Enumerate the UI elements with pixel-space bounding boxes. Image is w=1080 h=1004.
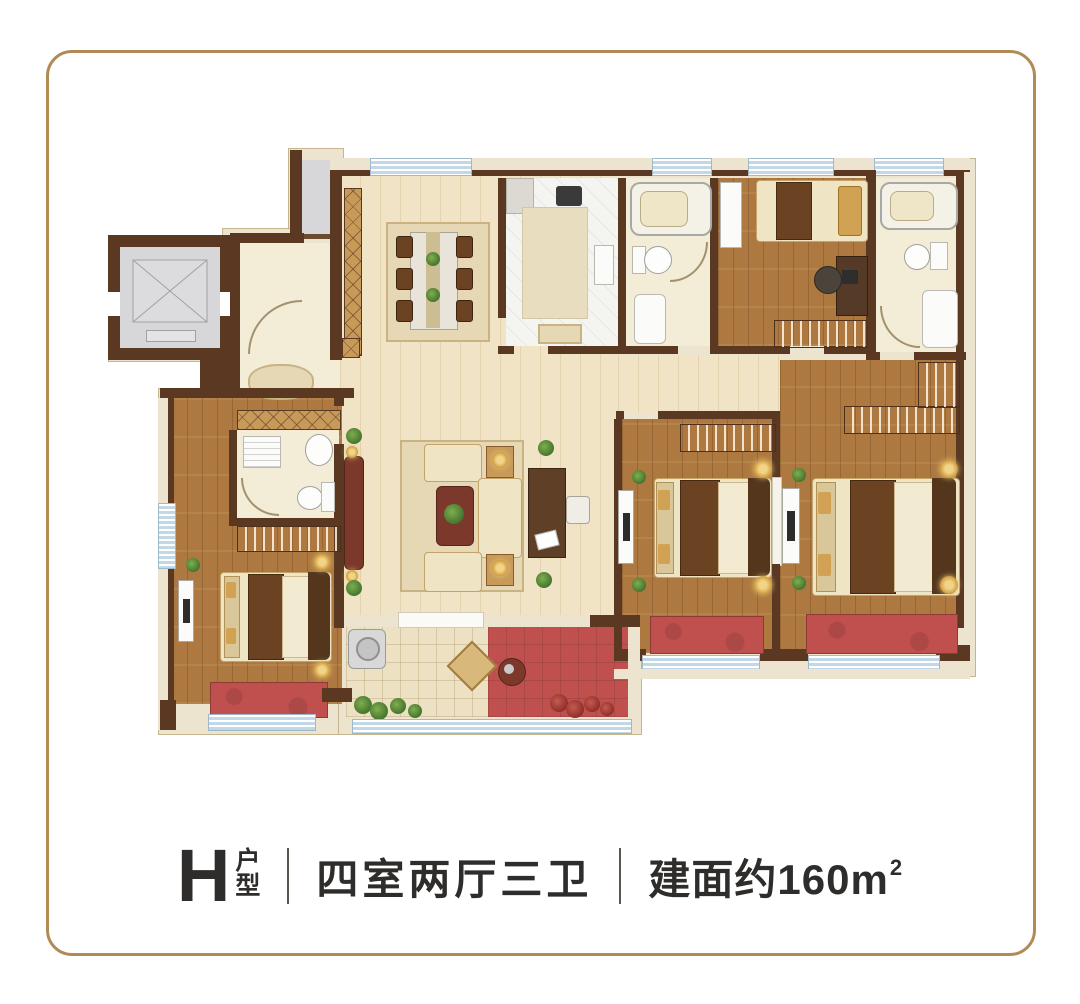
caption-divider bbox=[619, 848, 621, 904]
bed-blanket bbox=[850, 480, 896, 594]
teapot bbox=[504, 664, 514, 674]
shower bbox=[243, 436, 281, 468]
wall bbox=[230, 233, 240, 395]
desk bbox=[836, 256, 868, 316]
wall bbox=[168, 398, 174, 505]
rooms-text: 四室两厅三卫 bbox=[316, 846, 592, 907]
floor-plan bbox=[108, 148, 970, 748]
dining-chair bbox=[456, 236, 473, 258]
coffee-table-plant bbox=[444, 504, 464, 524]
wall bbox=[160, 388, 354, 398]
cabinet bbox=[720, 182, 742, 248]
bathtub bbox=[880, 182, 958, 230]
exterior-sill bbox=[964, 172, 972, 656]
porch-floor bbox=[302, 160, 330, 238]
entry-door bbox=[302, 234, 330, 239]
plant bbox=[538, 440, 554, 456]
dining-chair bbox=[396, 236, 413, 258]
nightstand-lamp bbox=[314, 554, 330, 570]
dining-chair bbox=[396, 268, 413, 290]
wall bbox=[229, 430, 237, 526]
exterior-sill bbox=[628, 627, 640, 727]
bathtub bbox=[630, 182, 712, 236]
wall bbox=[548, 346, 678, 354]
wall bbox=[658, 411, 780, 419]
wall bbox=[498, 346, 514, 354]
dining-chair bbox=[456, 300, 473, 322]
table-lamp bbox=[492, 452, 508, 468]
bed-headboard bbox=[748, 478, 770, 576]
red-plant bbox=[584, 696, 600, 712]
wall bbox=[870, 352, 880, 360]
decor-lamp bbox=[346, 446, 358, 458]
bay-carpet bbox=[650, 616, 764, 654]
plan-type: H 户 型 bbox=[177, 847, 260, 905]
toilet bbox=[297, 486, 323, 510]
hallway bbox=[618, 355, 780, 413]
dining-chair bbox=[396, 300, 413, 322]
desk-chair bbox=[814, 266, 842, 294]
dining-chair bbox=[456, 268, 473, 290]
loveseat bbox=[424, 552, 482, 592]
window bbox=[652, 158, 712, 176]
plant bbox=[346, 580, 362, 596]
wall bbox=[240, 233, 304, 243]
table-runner bbox=[426, 232, 440, 328]
wall bbox=[498, 178, 506, 318]
window bbox=[370, 158, 472, 176]
wall bbox=[616, 411, 624, 419]
bed-pillow bbox=[658, 490, 670, 510]
window bbox=[748, 158, 834, 176]
plan-type-word-bottom: 型 bbox=[235, 874, 260, 899]
toilet bbox=[904, 244, 930, 270]
wall bbox=[168, 567, 174, 700]
tv-cabinet bbox=[782, 488, 800, 564]
caption: H 户 型 四室两厅三卫 建面约160m2 bbox=[0, 836, 1080, 916]
wall bbox=[160, 700, 176, 730]
plan-type-word-top: 户 bbox=[235, 849, 260, 874]
bathroom-sink bbox=[305, 434, 333, 466]
area-value: 建面约160m bbox=[648, 856, 888, 903]
floor-plan-page: H 户 型 四室两厅三卫 建面约160m2 bbox=[0, 0, 1080, 1004]
wardrobe bbox=[844, 406, 960, 434]
bed-mattress bbox=[718, 482, 752, 574]
bed-pillow bbox=[226, 628, 236, 644]
bathroom-sink bbox=[634, 294, 666, 344]
tv-cabinet bbox=[178, 580, 194, 642]
bed-pillow bbox=[818, 554, 831, 576]
red-plant bbox=[600, 702, 614, 716]
area-text: 建面约160m2 bbox=[648, 846, 903, 907]
bay-carpet bbox=[806, 614, 958, 654]
red-plant bbox=[566, 700, 584, 718]
laptop bbox=[842, 270, 858, 284]
tv-stand bbox=[344, 456, 364, 570]
caption-divider bbox=[287, 848, 289, 904]
window bbox=[874, 158, 944, 176]
bed-pillow bbox=[818, 492, 831, 514]
bed-mattress bbox=[894, 482, 934, 592]
bay-carpet bbox=[210, 682, 328, 718]
desk-chair bbox=[566, 496, 590, 524]
nightstand-lamp bbox=[940, 460, 958, 478]
plant bbox=[792, 576, 806, 590]
wall bbox=[229, 518, 341, 526]
kitchen-sink bbox=[594, 245, 614, 285]
wall bbox=[772, 564, 780, 649]
wall bbox=[334, 398, 344, 406]
kitchen-mat bbox=[538, 324, 582, 344]
elevator-door-sill bbox=[146, 330, 196, 342]
plan-type-letter: H bbox=[177, 847, 228, 905]
bed-blanket bbox=[680, 480, 720, 576]
window bbox=[208, 714, 316, 731]
wall bbox=[108, 235, 232, 247]
wall bbox=[322, 688, 352, 702]
table-lamp bbox=[492, 560, 508, 576]
wall bbox=[330, 170, 342, 360]
wall bbox=[780, 649, 808, 661]
elevator-door-gap bbox=[108, 292, 120, 316]
plant bbox=[408, 704, 422, 718]
plant bbox=[632, 470, 646, 484]
storage-cabinet bbox=[342, 338, 360, 358]
plant bbox=[346, 428, 362, 444]
plant bbox=[632, 578, 646, 592]
toilet-tank bbox=[321, 482, 335, 512]
stove bbox=[556, 186, 582, 206]
nightstand-lamp bbox=[314, 662, 330, 678]
table-plant bbox=[426, 252, 440, 266]
wall bbox=[200, 360, 234, 388]
wall bbox=[914, 352, 966, 360]
exterior-sill bbox=[614, 669, 970, 679]
sofa bbox=[478, 478, 522, 558]
loveseat bbox=[424, 444, 482, 482]
toilet bbox=[644, 246, 672, 274]
wardrobe bbox=[680, 424, 776, 452]
bed-pillow bbox=[226, 582, 236, 598]
washing-machine-drum bbox=[356, 637, 380, 661]
bed-pillow bbox=[658, 544, 670, 564]
balcony-rail bbox=[398, 612, 484, 628]
bed-blanket bbox=[248, 574, 284, 660]
bathroom-sink bbox=[922, 290, 958, 348]
storage-cabinet bbox=[344, 188, 362, 356]
plant bbox=[536, 572, 552, 588]
plant bbox=[390, 698, 406, 714]
bed-blanket bbox=[776, 182, 812, 240]
storage-cabinet bbox=[237, 410, 341, 430]
nightstand-lamp bbox=[940, 576, 958, 594]
wall bbox=[590, 615, 640, 627]
plant bbox=[370, 702, 388, 720]
bed-pillow bbox=[838, 186, 862, 236]
wall bbox=[108, 348, 232, 360]
wardrobe bbox=[237, 526, 341, 552]
nightstand-lamp bbox=[754, 460, 772, 478]
tv-cabinet bbox=[618, 490, 634, 564]
plan-type-word: 户 型 bbox=[235, 849, 260, 899]
tv-niche bbox=[772, 477, 782, 566]
nightstand-lamp bbox=[754, 576, 772, 594]
plant bbox=[186, 558, 200, 572]
wardrobe bbox=[774, 320, 868, 348]
kitchen-island bbox=[522, 207, 588, 319]
window bbox=[352, 719, 632, 734]
wall bbox=[618, 178, 626, 348]
table-plant bbox=[426, 288, 440, 302]
closet bbox=[918, 362, 960, 408]
area-exponent: 2 bbox=[890, 855, 903, 880]
wall bbox=[290, 150, 302, 238]
window bbox=[158, 503, 176, 569]
bed-headboard bbox=[308, 572, 330, 660]
plant bbox=[792, 468, 806, 482]
elevator-shaft-symbol bbox=[132, 259, 208, 323]
toilet-tank bbox=[930, 242, 948, 270]
